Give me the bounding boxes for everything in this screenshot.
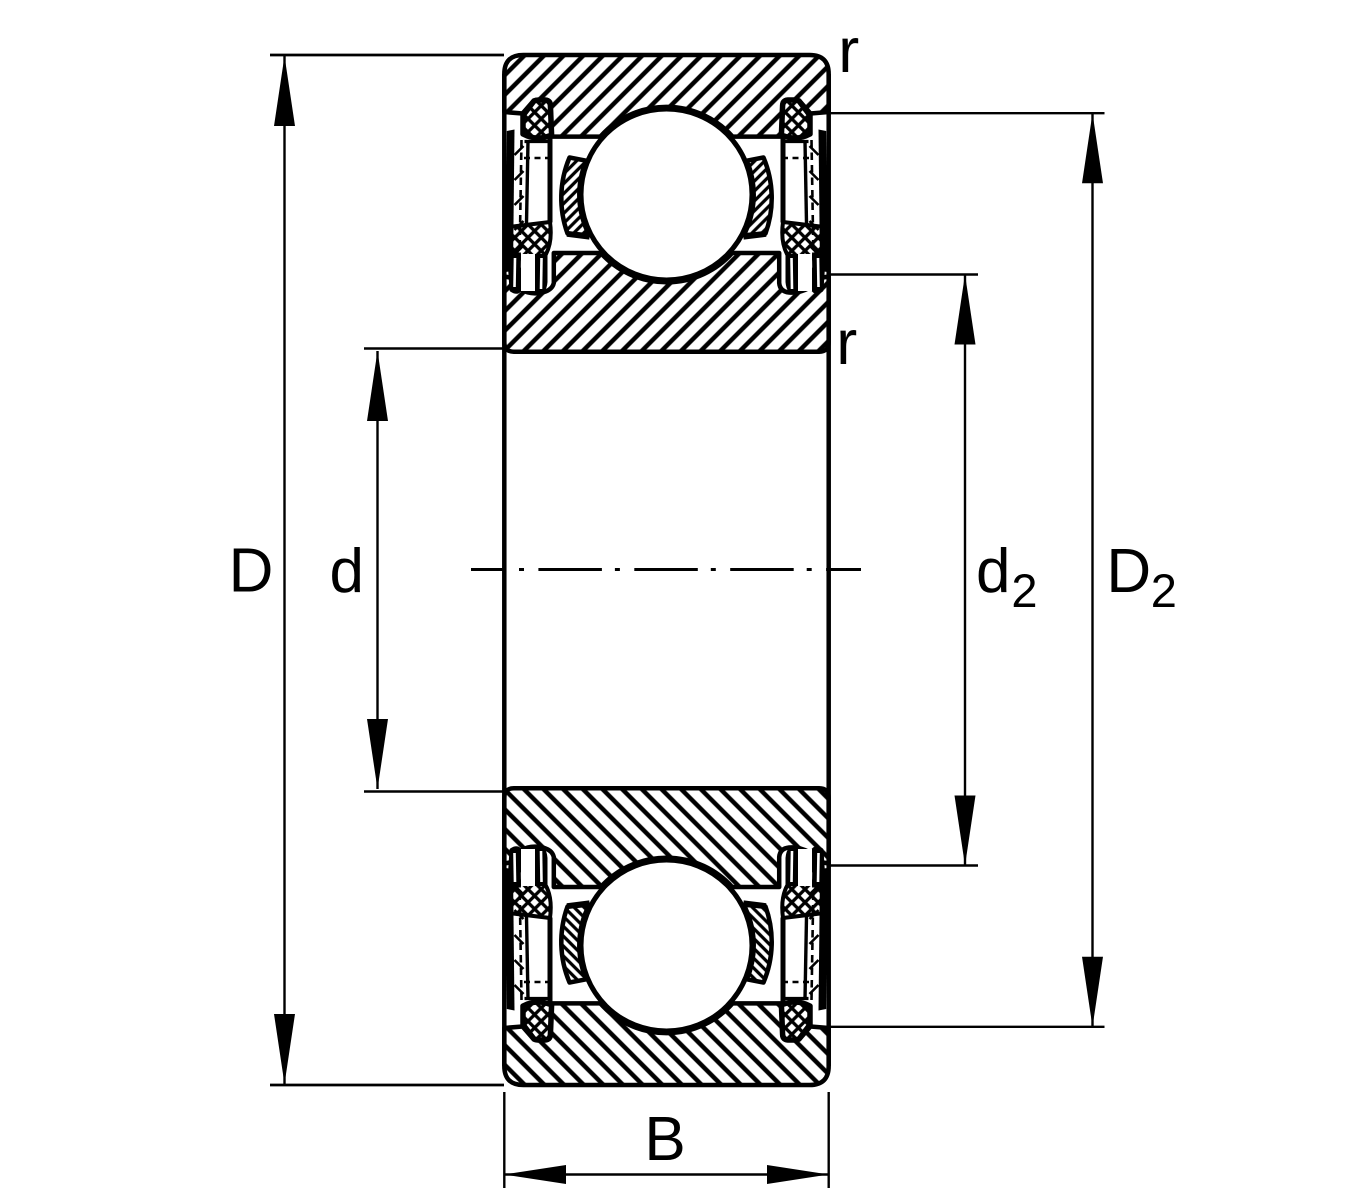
svg-text:D: D xyxy=(229,536,274,605)
svg-text:D: D xyxy=(1106,537,1151,606)
svg-text:B: B xyxy=(644,1105,685,1174)
svg-text:2: 2 xyxy=(1011,564,1037,617)
svg-text:d: d xyxy=(976,537,1010,606)
svg-text:r: r xyxy=(836,308,857,378)
svg-text:d: d xyxy=(329,537,363,606)
svg-text:2: 2 xyxy=(1151,564,1177,617)
svg-text:r: r xyxy=(838,16,859,86)
